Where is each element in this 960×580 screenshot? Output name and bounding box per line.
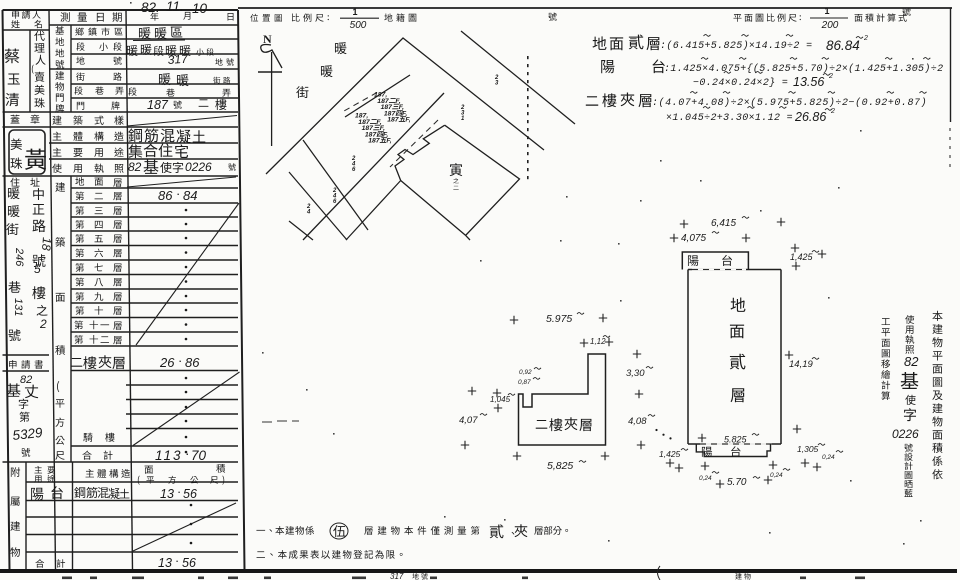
svg-text:4,07: 4,07 — [459, 415, 478, 426]
svg-text:0,24: 0,24 — [770, 472, 783, 479]
svg-text:6,415: 6,415 — [711, 218, 736, 229]
svg-text:1,045: 1,045 — [490, 395, 511, 404]
svg-text:317: 317 — [167, 52, 189, 67]
svg-text:82.: 82. — [141, 0, 160, 15]
svg-text:14,19: 14,19 — [789, 359, 813, 370]
svg-text:5,825: 5,825 — [547, 460, 573, 472]
svg-text:2: 2 — [39, 317, 47, 331]
svg-text:·: · — [176, 186, 180, 201]
svg-text:56: 56 — [183, 487, 197, 501]
svg-text:187: 187 — [147, 98, 169, 112]
svg-text:0,24: 0,24 — [699, 475, 712, 482]
svg-text:13: 13 — [160, 487, 174, 501]
svg-text:10: 10 — [192, 1, 208, 16]
svg-text:·: · — [185, 446, 190, 461]
svg-text:·: · — [178, 353, 182, 368]
svg-text::1.425×4.075+{(5.825+5.70)÷2×(: :1.425×4.075+{(5.825+5.70)÷2×(1.425+1.30… — [664, 63, 943, 75]
svg-text:26: 26 — [159, 355, 175, 370]
svg-text:0226: 0226 — [892, 427, 919, 441]
svg-text::(4.07+4.08)÷2×(5.975+5.825)÷2: :(4.07+4.08)÷2×(5.975+5.825)÷2−(0.92+0.8… — [652, 97, 927, 109]
svg-text:1,425: 1,425 — [790, 252, 814, 262]
svg-text:2: 2 — [828, 73, 833, 80]
svg-text:113: 113 — [155, 448, 183, 463]
svg-text:5329: 5329 — [12, 425, 44, 443]
svg-text:82: 82 — [904, 354, 919, 369]
svg-text:5.825: 5.825 — [724, 435, 748, 445]
svg-text:1: 1 — [824, 6, 829, 16]
svg-text:4: 4 — [306, 210, 311, 216]
svg-text:86.84: 86.84 — [826, 38, 860, 53]
svg-text:246: 246 — [13, 247, 25, 267]
svg-text:131: 131 — [12, 298, 24, 316]
svg-text:4,08: 4,08 — [628, 416, 647, 427]
svg-text:56: 56 — [182, 556, 196, 570]
svg-text:187五F,: 187五F, — [368, 137, 392, 145]
svg-text:·: · — [177, 485, 181, 499]
svg-text:0,24: 0,24 — [822, 454, 835, 461]
svg-text:N: N — [263, 32, 272, 46]
svg-text::(6.415+5.825)×14.19÷2 =: :(6.415+5.825)×14.19÷2 = — [660, 40, 812, 52]
svg-text:200: 200 — [821, 20, 839, 31]
svg-text:187五F,: 187五F, — [387, 116, 411, 124]
svg-text:·: · — [175, 554, 179, 568]
svg-text:1: 1 — [352, 7, 357, 17]
svg-text:82: 82 — [20, 374, 32, 386]
svg-text:0,92: 0,92 — [519, 369, 532, 376]
svg-text:13.56: 13.56 — [793, 75, 824, 89]
svg-text:84: 84 — [183, 188, 197, 203]
svg-text:1,425: 1,425 — [659, 449, 681, 459]
svg-text:1,12: 1,12 — [590, 337, 606, 346]
svg-text:5.70: 5.70 — [727, 477, 747, 488]
svg-text:3,30: 3,30 — [626, 368, 645, 379]
svg-text:11.: 11. — [166, 0, 184, 14]
svg-text:×1.045÷2+3.30×1.12 =: ×1.045÷2+3.30×1.12 = — [666, 113, 793, 124]
svg-text:0226: 0226 — [185, 160, 212, 174]
svg-text:18: 18 — [39, 237, 54, 252]
svg-text:4,075: 4,075 — [681, 233, 706, 244]
svg-text:70: 70 — [191, 448, 207, 463]
svg-text:500: 500 — [350, 20, 367, 31]
svg-text:−0.24×0.24×2} =: −0.24×0.24×2} = — [693, 77, 788, 89]
svg-text:2: 2 — [863, 35, 868, 42]
svg-text:82: 82 — [128, 160, 142, 174]
svg-text:13: 13 — [158, 556, 172, 570]
svg-text:86: 86 — [185, 355, 200, 370]
svg-text:5: 5 — [34, 262, 41, 276]
svg-text:5.975: 5.975 — [546, 313, 572, 325]
svg-text:0,87: 0,87 — [518, 379, 531, 386]
svg-text:2: 2 — [830, 108, 835, 115]
svg-text:1,305: 1,305 — [797, 444, 819, 454]
svg-text:26.86: 26.86 — [794, 110, 826, 124]
svg-text:317: 317 — [390, 572, 404, 580]
svg-text:86: 86 — [158, 188, 173, 203]
